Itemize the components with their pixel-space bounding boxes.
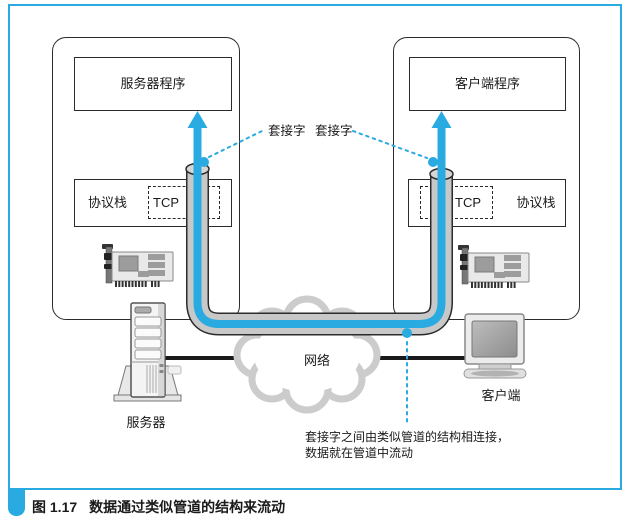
caption-title: 数据通过类似管道的结构来流动 — [89, 499, 285, 515]
client-tcp-label: TCP — [455, 186, 481, 219]
note-line-1: 套接字之间由类似管道的结构相连接， — [305, 430, 509, 446]
socket-point-left — [199, 157, 209, 167]
socket-label-right: 套接字 — [315, 120, 353, 139]
caption-number: 图 1.17 — [32, 499, 77, 515]
socket-callout-line-right — [353, 131, 427, 158]
server-program-label: 服务器程序 — [74, 57, 232, 111]
data-flow-arrow-right — [432, 111, 452, 128]
data-pipe — [186, 111, 453, 324]
nic-icon-right — [458, 245, 529, 288]
note-line-2: 数据就在管道中流动 — [305, 446, 509, 462]
server-tower-icon — [114, 303, 181, 401]
socket-point-right — [428, 157, 438, 167]
note-text: 套接字之间由类似管道的结构相连接， 数据就在管道中流动 — [305, 430, 509, 461]
pipe-midpoint-dot — [402, 328, 412, 338]
client-machine-label: 客户端 — [461, 385, 541, 404]
data-flow-stream — [198, 126, 442, 324]
client-protocol-stack-label: 协议栈 — [506, 179, 566, 227]
socket-callout-line-left — [209, 131, 262, 157]
server-protocol-stack-label: 协议栈 — [88, 179, 127, 227]
server-tcp-label: TCP — [153, 186, 179, 219]
network-label: 网络 — [282, 350, 352, 369]
client-monitor-icon — [464, 314, 526, 378]
figure: 服务器程序 客户端程序 协议栈 协议栈 TCP TCP 套接字 套接字 网络 服… — [0, 0, 632, 523]
nic-icon-left — [102, 244, 173, 287]
data-flow-arrow-left — [188, 111, 208, 128]
socket-label-left: 套接字 — [268, 120, 306, 139]
client-program-label: 客户端程序 — [409, 57, 566, 111]
figure-caption: 图 1.17数据通过类似管道的结构来流动 — [32, 497, 285, 517]
server-machine-label: 服务器 — [106, 412, 186, 431]
